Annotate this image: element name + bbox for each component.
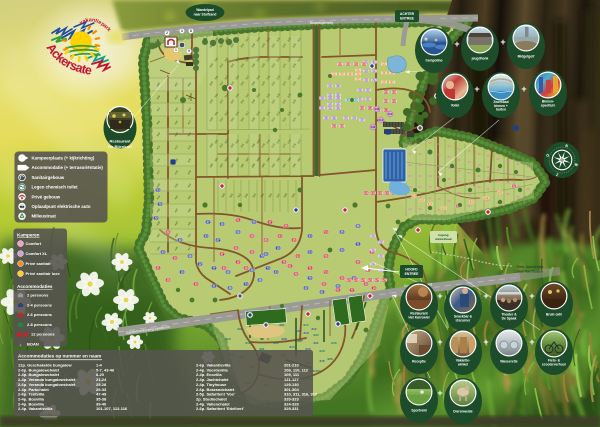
svg-text:27: 27 <box>457 180 461 184</box>
svg-text:202: 202 <box>381 80 386 84</box>
svg-text:99: 99 <box>408 207 412 211</box>
svg-text:95: 95 <box>428 141 432 145</box>
svg-text:40: 40 <box>470 200 474 204</box>
svg-text:34: 34 <box>274 270 278 274</box>
svg-text:+: + <box>500 37 505 47</box>
svg-text:2-6 persoons: 2-6 persoons <box>27 312 53 317</box>
svg-text:51: 51 <box>236 218 240 222</box>
svg-text:43: 43 <box>496 168 500 172</box>
svg-text:261: 261 <box>345 62 350 66</box>
svg-text:996: 996 <box>237 327 242 331</box>
svg-text:91: 91 <box>320 290 324 294</box>
svg-text:232: 232 <box>359 106 364 110</box>
svg-text:winkelhoek: winkelhoek <box>434 237 452 241</box>
svg-text:34: 34 <box>204 234 208 238</box>
svg-text:72: 72 <box>154 216 158 220</box>
svg-text:61: 61 <box>288 264 292 268</box>
svg-text:+: + <box>529 337 534 347</box>
svg-text:jeugdhonk: jeugdhonk <box>471 57 489 61</box>
svg-text:Accommodatie (+ terrasoriëntat: Accommodatie (+ terrasoriëntatie) <box>32 165 104 170</box>
svg-text:97: 97 <box>418 174 422 178</box>
svg-text:317: 317 <box>323 116 328 120</box>
svg-text:324: 324 <box>319 96 324 100</box>
svg-text:Receptie: Receptie <box>412 360 426 364</box>
svg-text:Privé sanitair luxe: Privé sanitair luxe <box>26 271 61 276</box>
svg-text:2: 2 <box>166 31 168 35</box>
svg-text:57: 57 <box>506 181 510 185</box>
svg-text:13: 13 <box>180 270 184 274</box>
svg-text:329-331: 329-331 <box>284 406 299 411</box>
svg-text:12: 12 <box>198 262 202 266</box>
svg-text:94: 94 <box>296 254 300 258</box>
svg-text:Legen chemisch toilet: Legen chemisch toilet <box>32 185 79 190</box>
svg-text:20: 20 <box>447 177 451 181</box>
svg-text:231: 231 <box>361 62 366 66</box>
svg-text:986: 986 <box>327 357 332 361</box>
svg-text:108: 108 <box>375 107 380 111</box>
svg-text:58: 58 <box>467 193 471 197</box>
svg-text:ENTREE: ENTREE <box>405 272 419 276</box>
svg-text:55: 55 <box>284 224 288 228</box>
svg-text:315: 315 <box>331 116 336 120</box>
svg-text:917: 917 <box>303 323 308 327</box>
svg-text:45: 45 <box>457 169 461 173</box>
svg-text:Milieustraat: Milieustraat <box>32 214 57 219</box>
svg-text:35: 35 <box>340 230 344 234</box>
svg-text:228: 228 <box>371 78 376 82</box>
svg-text:38: 38 <box>228 286 232 290</box>
svg-text:101-107, 113-116: 101-107, 113-116 <box>96 406 128 411</box>
svg-text:126: 126 <box>381 278 386 282</box>
svg-text:125: 125 <box>374 278 379 282</box>
svg-text:De Bijenkorf: De Bijenkorf <box>108 144 132 149</box>
svg-text:257: 257 <box>327 84 332 88</box>
svg-text:271: 271 <box>347 72 352 76</box>
svg-text:Kampeerplaats (+ kijkrichting): Kampeerplaats (+ kijkrichting) <box>32 156 95 161</box>
svg-text:39: 39 <box>477 196 481 200</box>
svg-text:325: 325 <box>370 248 375 252</box>
svg-text:257: 257 <box>363 69 368 73</box>
svg-text:2-6p. Safaritent 'Edelhert': 2-6p. Safaritent 'Edelhert' <box>196 406 244 411</box>
svg-text:209: 209 <box>359 118 364 122</box>
svg-text:131: 131 <box>363 191 368 195</box>
svg-text:258: 258 <box>371 69 376 73</box>
svg-text:227: 227 <box>331 124 336 128</box>
svg-text:60: 60 <box>447 155 451 159</box>
svg-text:70: 70 <box>408 152 412 156</box>
svg-text:+: + <box>521 84 526 94</box>
svg-text:29: 29 <box>477 185 481 189</box>
svg-text:916: 916 <box>245 341 250 345</box>
svg-text:45: 45 <box>467 149 471 153</box>
svg-text:46: 46 <box>437 186 441 190</box>
svg-text:29: 29 <box>294 272 298 276</box>
svg-text:88: 88 <box>356 224 360 228</box>
svg-text:23: 23 <box>161 250 165 254</box>
svg-text:960: 960 <box>273 341 278 345</box>
svg-text:74: 74 <box>244 282 248 286</box>
svg-text:63: 63 <box>467 160 471 164</box>
svg-text:23: 23 <box>364 282 368 286</box>
svg-text:78: 78 <box>506 170 510 174</box>
svg-text:99: 99 <box>408 163 412 167</box>
svg-text:24: 24 <box>437 142 441 146</box>
svg-text:94: 94 <box>486 154 490 158</box>
svg-text:Restaurant: Restaurant <box>110 139 132 144</box>
svg-text:82: 82 <box>516 162 520 166</box>
svg-text:naar Voorthuizen: naar Voorthuizen <box>517 270 543 274</box>
svg-text:51: 51 <box>336 288 340 292</box>
svg-text:230: 230 <box>343 116 348 120</box>
svg-text:41: 41 <box>437 208 441 212</box>
svg-text:23: 23 <box>340 248 344 252</box>
svg-text:123: 123 <box>360 278 365 282</box>
svg-text:75: 75 <box>526 165 530 169</box>
svg-text:63: 63 <box>506 159 510 163</box>
svg-text:98: 98 <box>516 195 520 199</box>
svg-text:27: 27 <box>216 238 220 242</box>
svg-text:Comfort XL: Comfort XL <box>26 251 48 256</box>
svg-text:233: 233 <box>339 72 344 76</box>
svg-text:3: 3 <box>181 29 183 33</box>
svg-text:327: 327 <box>297 339 302 343</box>
svg-text:+: + <box>437 291 442 301</box>
svg-text:48: 48 <box>166 278 170 282</box>
svg-text:39: 39 <box>244 266 248 270</box>
svg-text:46: 46 <box>428 202 432 206</box>
svg-text:28: 28 <box>250 234 254 238</box>
svg-text:17: 17 <box>268 220 272 224</box>
svg-text:BOAN: BOAN <box>27 342 39 347</box>
svg-text:77: 77 <box>350 288 354 292</box>
svg-text:52: 52 <box>512 184 516 188</box>
svg-text:61: 61 <box>457 147 461 151</box>
svg-text:Wandelpad: Wandelpad <box>196 8 213 12</box>
svg-text:321: 321 <box>370 234 375 238</box>
svg-text:55: 55 <box>428 185 432 189</box>
svg-text:239: 239 <box>365 88 370 92</box>
svg-text:109: 109 <box>371 125 376 129</box>
svg-text:264: 264 <box>353 62 358 66</box>
svg-text:204: 204 <box>363 78 368 82</box>
svg-text:54: 54 <box>498 190 502 194</box>
svg-text:43: 43 <box>194 282 198 286</box>
svg-text:225: 225 <box>355 72 360 76</box>
svg-text:59: 59 <box>418 207 422 211</box>
svg-text:50: 50 <box>420 198 424 202</box>
svg-text:93: 93 <box>264 252 268 256</box>
svg-text:buiten: buiten <box>496 108 506 112</box>
svg-text:54: 54 <box>324 230 328 234</box>
svg-text:70: 70 <box>158 202 162 206</box>
svg-text:80: 80 <box>457 158 461 162</box>
svg-text:215: 215 <box>381 71 386 75</box>
svg-text:12: 12 <box>428 163 432 167</box>
svg-text:317: 317 <box>327 96 332 100</box>
svg-text:76: 76 <box>282 260 286 264</box>
svg-text:2 persoons: 2 persoons <box>27 293 49 298</box>
svg-text:54: 54 <box>324 270 328 274</box>
svg-text:72: 72 <box>486 187 490 191</box>
svg-text:217: 217 <box>335 84 340 88</box>
svg-text:Accommodaties: Accommodaties <box>17 284 53 289</box>
svg-text:71: 71 <box>356 242 360 246</box>
svg-text:43: 43 <box>173 256 177 260</box>
svg-text:65: 65 <box>457 191 461 195</box>
svg-text:25: 25 <box>322 282 326 286</box>
svg-text:13: 13 <box>372 286 376 290</box>
svg-text:54: 54 <box>156 188 160 192</box>
svg-text:39: 39 <box>486 165 490 169</box>
svg-text:29: 29 <box>250 268 254 272</box>
svg-text:254: 254 <box>351 116 356 120</box>
svg-text:95: 95 <box>408 174 412 178</box>
svg-text:57: 57 <box>484 196 488 200</box>
svg-text:+: + <box>437 337 442 347</box>
svg-text:56: 56 <box>324 254 328 258</box>
svg-text:934: 934 <box>313 333 318 337</box>
svg-text:112: 112 <box>379 118 384 122</box>
svg-text:scooterverhuur: scooterverhuur <box>542 363 567 367</box>
svg-text:31: 31 <box>212 284 216 288</box>
svg-text:256: 256 <box>381 62 386 66</box>
svg-text:56: 56 <box>412 194 416 198</box>
svg-text:63: 63 <box>252 220 256 224</box>
svg-text:Bruin café: Bruin café <box>546 313 562 317</box>
svg-text:29: 29 <box>234 246 238 250</box>
svg-text:961: 961 <box>279 323 284 327</box>
svg-text:+: + <box>529 291 534 301</box>
svg-text:70: 70 <box>308 276 312 280</box>
svg-text:232: 232 <box>391 90 396 94</box>
svg-text:314: 314 <box>289 345 294 349</box>
svg-text:+: + <box>454 39 459 49</box>
svg-text:313: 313 <box>335 96 340 100</box>
svg-text:40: 40 <box>220 222 224 226</box>
svg-text:325: 325 <box>327 106 332 110</box>
svg-text:266: 266 <box>331 72 336 76</box>
svg-text:268: 268 <box>337 62 342 66</box>
svg-text:88: 88 <box>506 192 510 196</box>
svg-text:315: 315 <box>335 106 340 110</box>
svg-text:249: 249 <box>389 80 394 84</box>
svg-text:134: 134 <box>384 191 389 195</box>
svg-text:73: 73 <box>437 153 441 157</box>
svg-text:54: 54 <box>308 250 312 254</box>
svg-text:25: 25 <box>356 260 360 264</box>
svg-text:2-4p. Vakantievilla: 2-4p. Vakantievilla <box>18 406 53 411</box>
svg-text:60: 60 <box>447 144 451 148</box>
svg-text:86: 86 <box>264 238 268 242</box>
svg-text:naar Stuifzand: naar Stuifzand <box>194 13 217 17</box>
svg-text:322: 322 <box>378 254 383 258</box>
svg-text:37: 37 <box>220 252 224 256</box>
svg-text:12 persoons: 12 persoons <box>31 332 55 337</box>
svg-text:953: 953 <box>315 369 320 373</box>
svg-text:37: 37 <box>206 220 210 224</box>
svg-text:26: 26 <box>250 250 254 254</box>
svg-text:328: 328 <box>281 337 286 341</box>
svg-text:46: 46 <box>496 179 500 183</box>
svg-text:212: 212 <box>367 106 372 110</box>
svg-text:IJscorner: IJscorner <box>456 319 472 323</box>
svg-text:69: 69 <box>428 174 432 178</box>
svg-text:50: 50 <box>442 206 446 210</box>
svg-text:32: 32 <box>304 286 308 290</box>
svg-text:Vollei: Vollei <box>451 104 460 108</box>
svg-text:1: 1 <box>175 48 177 52</box>
svg-text:918: 918 <box>319 349 324 353</box>
svg-text:Privé gebouw: Privé gebouw <box>32 194 61 199</box>
svg-text:17: 17 <box>437 164 441 168</box>
svg-text:121: 121 <box>346 278 351 282</box>
svg-text:132: 132 <box>370 191 375 195</box>
svg-text:winkel: winkel <box>457 363 468 367</box>
svg-text:+: + <box>483 291 488 301</box>
svg-text:316: 316 <box>319 359 324 363</box>
svg-text:Midgetgolf: Midgetgolf <box>518 55 536 59</box>
svg-text:20: 20 <box>340 276 344 280</box>
svg-text:31: 31 <box>447 188 451 192</box>
svg-text:Kamperen: Kamperen <box>17 233 40 238</box>
svg-text:Oplaadpunt elektrische auto: Oplaadpunt elektrische auto <box>32 204 91 209</box>
svg-text:+: + <box>474 84 479 94</box>
svg-text:93: 93 <box>526 187 530 191</box>
svg-text:312: 312 <box>311 327 316 331</box>
svg-text:44: 44 <box>408 141 412 145</box>
svg-text:De Spaak: De Spaak <box>502 317 517 321</box>
svg-text:67: 67 <box>418 185 422 189</box>
svg-text:206: 206 <box>383 90 388 94</box>
svg-text:Wasserette: Wasserette <box>500 360 518 364</box>
svg-text:238: 238 <box>339 124 344 128</box>
svg-text:13: 13 <box>276 246 280 250</box>
svg-text:74: 74 <box>266 266 270 270</box>
svg-text:92: 92 <box>418 152 422 156</box>
svg-text:133: 133 <box>377 191 382 195</box>
svg-text:31: 31 <box>428 196 432 200</box>
svg-text:11: 11 <box>487 176 490 180</box>
svg-text:Het Karrewiel: Het Karrewiel <box>408 316 429 320</box>
svg-text:69: 69 <box>166 230 170 234</box>
svg-text:speeltuin: speeltuin <box>541 104 555 108</box>
svg-text:71: 71 <box>308 266 312 270</box>
svg-text:+: + <box>483 337 488 347</box>
svg-text:209: 209 <box>353 98 358 102</box>
svg-text:77: 77 <box>212 266 216 270</box>
svg-text:49: 49 <box>178 238 182 242</box>
svg-text:Comfort: Comfort <box>26 241 42 246</box>
svg-text:220: 220 <box>357 88 362 92</box>
svg-text:9: 9 <box>188 49 190 53</box>
svg-text:trampolino: trampolino <box>425 59 442 63</box>
svg-text:ENTREE: ENTREE <box>400 16 414 20</box>
svg-text:33: 33 <box>496 157 500 161</box>
svg-text:67: 67 <box>447 199 451 203</box>
svg-text:321: 321 <box>313 341 318 345</box>
svg-text:45: 45 <box>292 238 296 242</box>
svg-text:Sanitairgebouw: Sanitairgebouw <box>32 175 65 180</box>
svg-text:38: 38 <box>258 278 262 282</box>
svg-text:83: 83 <box>418 163 422 167</box>
svg-text:89: 89 <box>526 176 530 180</box>
svg-text:122: 122 <box>353 278 358 282</box>
svg-text:228: 228 <box>383 99 388 103</box>
svg-text:916: 916 <box>331 341 336 345</box>
svg-text:20: 20 <box>477 163 481 167</box>
svg-text:Accommodaties op nummer en naa: Accommodaties op nummer en naam <box>18 354 101 359</box>
svg-text:33: 33 <box>222 266 226 270</box>
svg-text:26: 26 <box>516 184 520 188</box>
svg-text:329: 329 <box>295 329 300 333</box>
svg-text:322: 322 <box>378 240 383 244</box>
svg-text:98: 98 <box>226 270 230 274</box>
svg-text:97: 97 <box>467 182 471 186</box>
svg-text:32: 32 <box>477 174 481 178</box>
svg-text:+: + <box>437 388 442 398</box>
svg-text:21: 21 <box>156 266 160 270</box>
svg-text:26: 26 <box>437 197 441 201</box>
svg-text:98: 98 <box>188 254 192 258</box>
svg-text:69: 69 <box>236 230 240 234</box>
svg-text:110: 110 <box>388 112 393 116</box>
svg-text:2-8 persoons: 2-8 persoons <box>27 322 53 327</box>
svg-text:12: 12 <box>236 260 240 264</box>
svg-text:232: 232 <box>355 77 360 81</box>
svg-text:322: 322 <box>319 106 324 110</box>
svg-text:Privé sanitair: Privé sanitair <box>26 261 52 266</box>
svg-text:Dierenweide: Dierenweide <box>453 410 473 414</box>
svg-text:923: 923 <box>225 337 230 341</box>
svg-text:Fiets- /wandelpad: Fiets- /wandelpad <box>517 265 544 269</box>
svg-text:55: 55 <box>467 171 471 175</box>
svg-text:310: 310 <box>303 331 308 335</box>
svg-text:Sportveld: Sportveld <box>411 409 426 413</box>
svg-text:29: 29 <box>477 152 481 156</box>
svg-text:39: 39 <box>467 204 471 208</box>
svg-text:8: 8 <box>190 29 192 33</box>
svg-text:238: 238 <box>365 97 370 101</box>
svg-text:235: 235 <box>391 99 396 103</box>
svg-text:124: 124 <box>367 278 372 282</box>
svg-text:94: 94 <box>278 234 282 238</box>
svg-text:2-4 persoons: 2-4 persoons <box>27 302 53 307</box>
svg-text:34: 34 <box>308 234 312 238</box>
